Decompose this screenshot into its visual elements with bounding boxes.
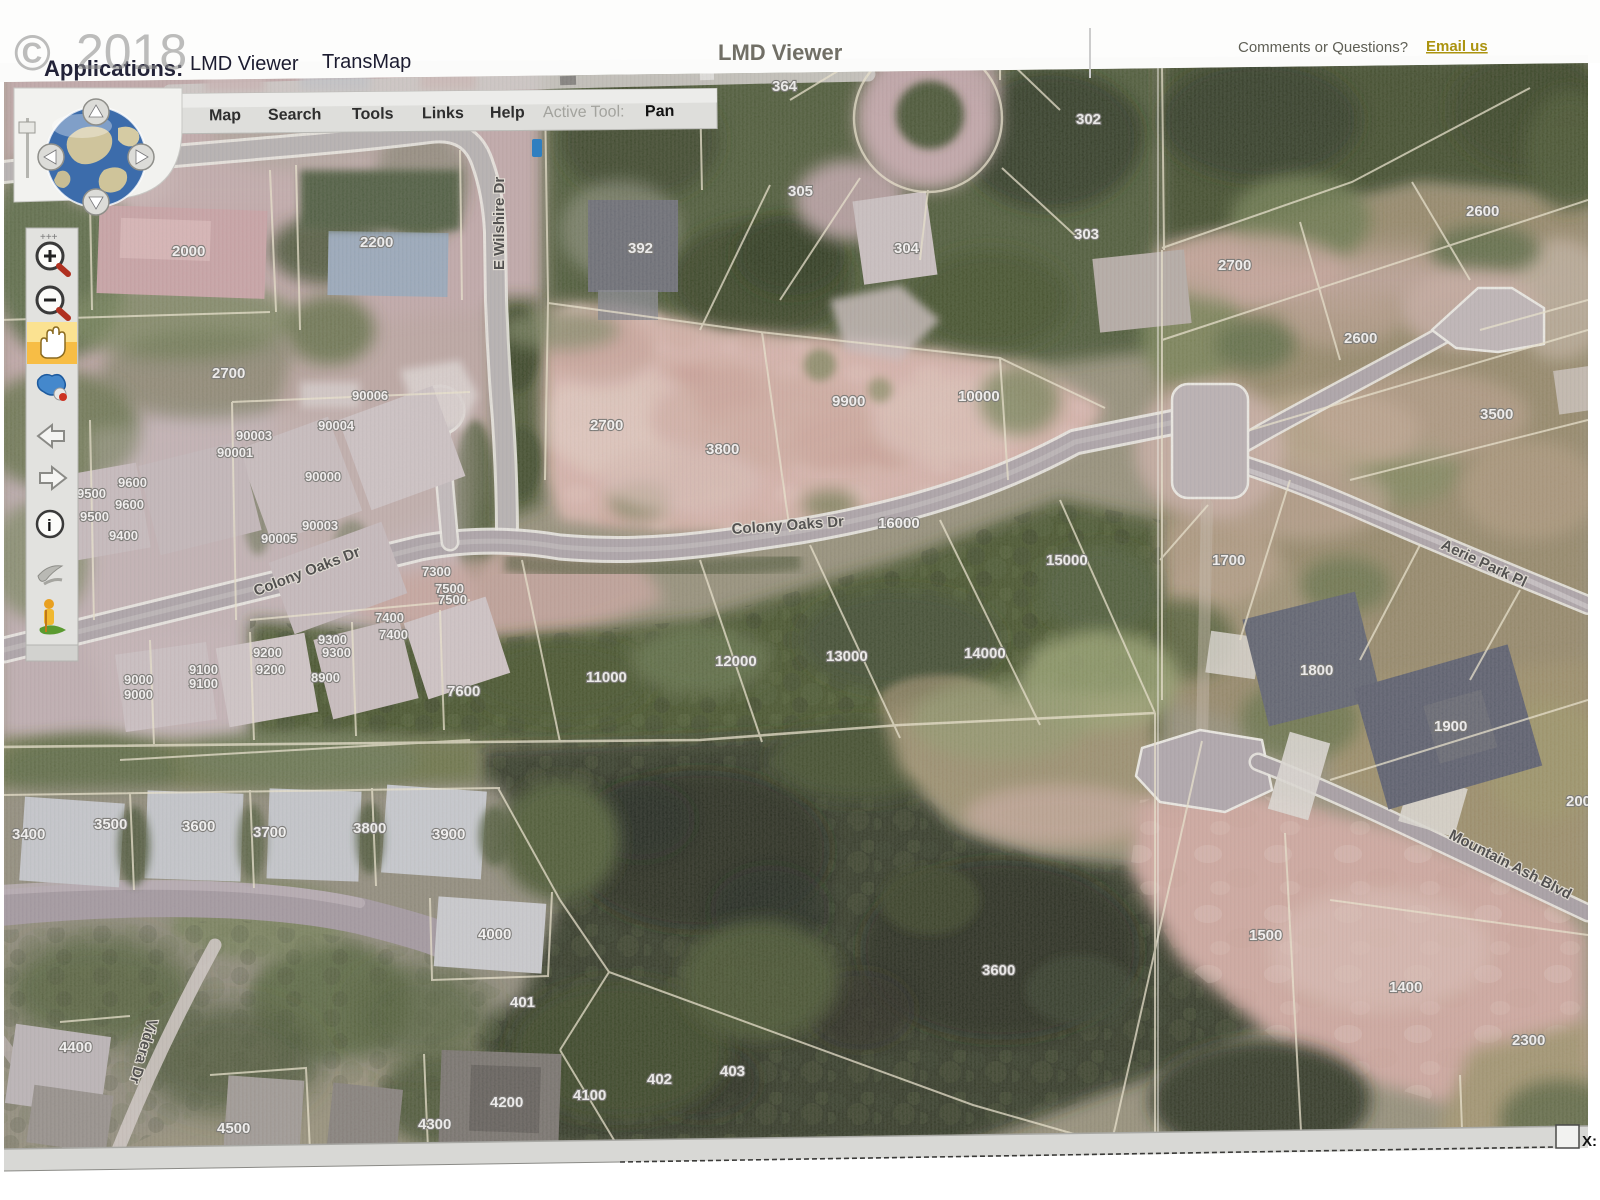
svg-text:Map: Map xyxy=(209,107,241,124)
svg-text:Links: Links xyxy=(422,105,464,122)
svg-text:Email us: Email us xyxy=(1426,38,1488,55)
svg-text:LMD Viewer: LMD Viewer xyxy=(190,53,299,75)
svg-text:X:: X: xyxy=(1582,1133,1597,1150)
svg-text:Search: Search xyxy=(268,106,322,124)
svg-text:LMD Viewer: LMD Viewer xyxy=(718,40,843,65)
svg-text:Comments or Questions?: Comments or Questions? xyxy=(1238,39,1408,56)
svg-text:i: i xyxy=(47,516,52,535)
svg-text:Active Tool:: Active Tool: xyxy=(543,103,625,121)
svg-text:+++: +++ xyxy=(40,232,58,243)
svg-text:2018: 2018 xyxy=(76,24,187,80)
svg-text:©: © xyxy=(14,25,53,81)
svg-text:Tools: Tools xyxy=(352,106,394,123)
svg-text:Pan: Pan xyxy=(645,103,675,120)
svg-text:Help: Help xyxy=(490,104,525,121)
svg-text:TransMap: TransMap xyxy=(322,51,411,73)
